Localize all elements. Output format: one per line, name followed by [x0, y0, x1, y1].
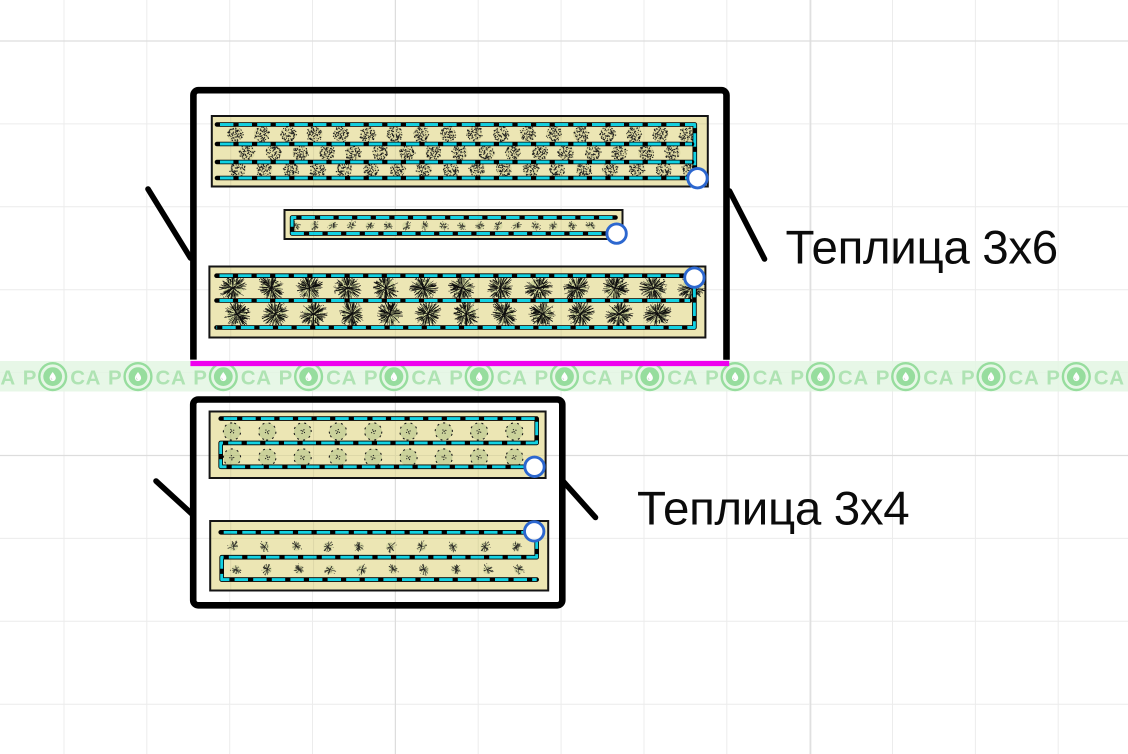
svg-text:СА: СА — [582, 367, 614, 390]
svg-text:СА: СА — [838, 367, 870, 390]
svg-text:СА: СА — [156, 367, 188, 390]
svg-text:Р: Р — [108, 367, 123, 390]
svg-text:СА: СА — [70, 367, 102, 390]
svg-text:Теплица 3х6: Теплица 3х6 — [786, 221, 1058, 274]
svg-text:Р: Р — [790, 367, 805, 390]
svg-text:СА: СА — [1094, 367, 1126, 390]
svg-text:Р: Р — [364, 367, 379, 390]
svg-text:СА: СА — [326, 367, 358, 390]
svg-text:Р: Р — [876, 367, 891, 390]
svg-text:СА: СА — [923, 367, 955, 390]
svg-text:Р: Р — [620, 367, 635, 390]
svg-text:Р: Р — [193, 367, 208, 390]
svg-text:СА: СА — [411, 367, 443, 390]
svg-text:Р: Р — [23, 367, 38, 390]
svg-text:Р: Р — [535, 367, 550, 390]
svg-text:СА: СА — [241, 367, 272, 390]
svg-text:СА: СА — [667, 367, 699, 390]
svg-text:Р: Р — [1046, 367, 1061, 390]
svg-text:СА: СА — [1009, 367, 1041, 390]
svg-text:Р: Р — [705, 367, 720, 390]
svg-text:Р: Р — [449, 367, 464, 390]
svg-text:СА: СА — [0, 367, 16, 390]
svg-text:Р: Р — [961, 367, 976, 390]
svg-text:СА: СА — [497, 367, 529, 390]
svg-text:СА: СА — [753, 367, 785, 390]
svg-text:Р: Р — [279, 367, 294, 390]
svg-text:Теплица 3х4: Теплица 3х4 — [637, 482, 909, 535]
